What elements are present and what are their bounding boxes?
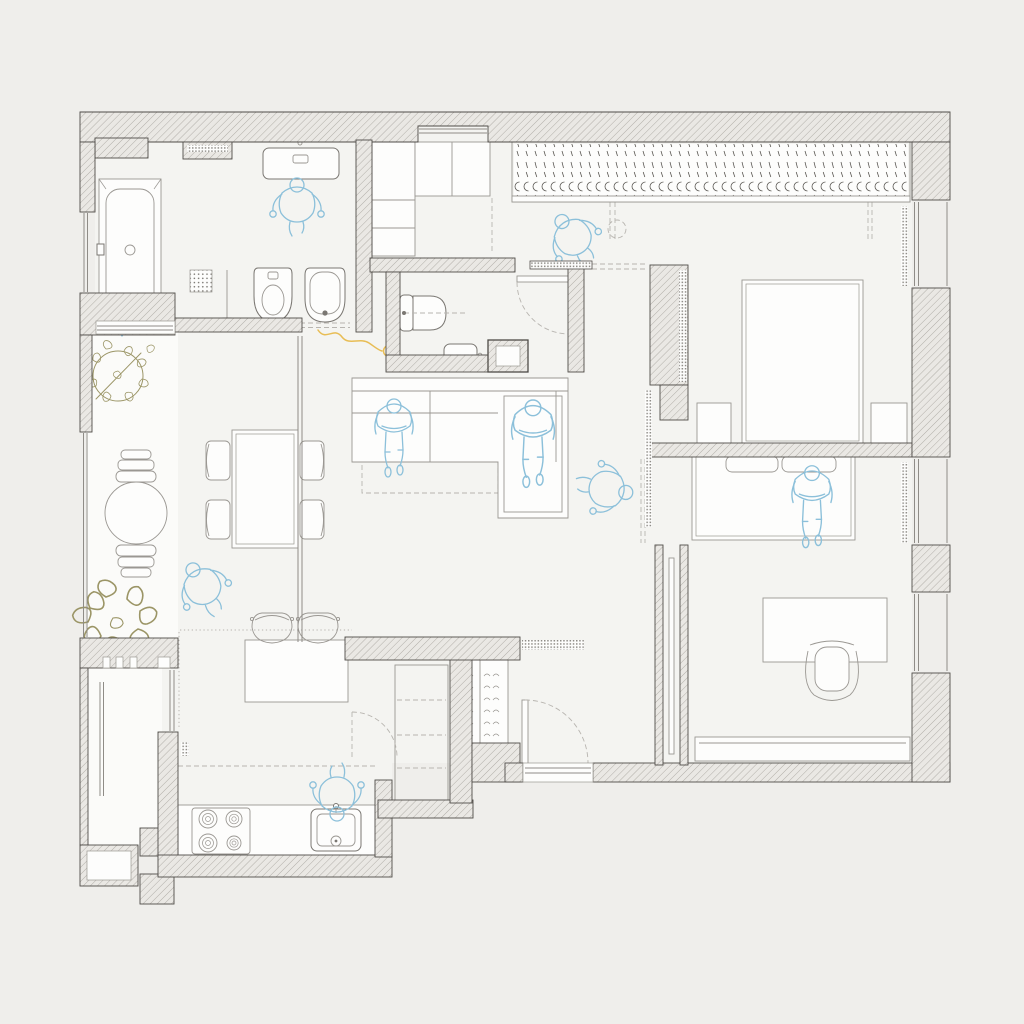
washbasin bbox=[263, 148, 339, 179]
bathtub-faucet bbox=[97, 244, 104, 255]
wall-tv bbox=[345, 637, 520, 660]
pocket-wall-west bbox=[655, 545, 663, 765]
shower-head-grid bbox=[190, 270, 212, 292]
dining-chair bbox=[206, 441, 230, 480]
wall-wc-top bbox=[370, 258, 515, 272]
glass-partition-strip bbox=[645, 390, 652, 527]
roller-blind-kids bbox=[901, 462, 908, 543]
balcony-lower-floor bbox=[86, 662, 162, 846]
vent-grille-kitchen bbox=[181, 742, 189, 756]
double-bed bbox=[742, 280, 863, 445]
wall-kitchen-bottom bbox=[158, 855, 392, 877]
dining-table bbox=[232, 430, 298, 548]
hanging-rail bbox=[514, 144, 908, 197]
wardrobe-front bbox=[512, 196, 910, 202]
wall-bottom-right bbox=[593, 763, 950, 782]
floor-plan: Apartment floor plan — top view architec… bbox=[0, 0, 1024, 1024]
pocket-wall-east bbox=[680, 545, 688, 765]
wall-bathroom-right bbox=[356, 140, 372, 332]
vent-grille-bath bbox=[187, 145, 228, 152]
master-wall-panel-strip bbox=[679, 270, 687, 382]
pillow-2 bbox=[782, 456, 836, 472]
nightstand-left bbox=[697, 403, 731, 445]
upper-cabinet bbox=[415, 142, 490, 196]
tall-cabinet bbox=[372, 142, 415, 256]
nightstand-right bbox=[871, 403, 907, 445]
dining-chair bbox=[300, 500, 324, 539]
roller-blind-master bbox=[901, 206, 908, 286]
pocket-door-leaf bbox=[669, 558, 674, 754]
sliding-door-panel bbox=[530, 261, 592, 269]
wall-top bbox=[80, 112, 950, 142]
toilet bbox=[305, 268, 345, 322]
dining-chair bbox=[300, 441, 324, 480]
bidet bbox=[254, 268, 292, 322]
pillow-1 bbox=[726, 456, 778, 472]
wardrobe-closet bbox=[512, 142, 910, 202]
kitchen-sink bbox=[311, 804, 361, 852]
wc-door-leaf bbox=[517, 276, 569, 282]
entry-bench-dotted bbox=[522, 640, 584, 650]
dining-chair bbox=[206, 500, 230, 539]
floor-plan-page: Apartment floor plan — top view architec… bbox=[0, 0, 1024, 1024]
entrance-door-leaf bbox=[522, 700, 528, 764]
wall-master-south bbox=[650, 443, 912, 457]
peninsula-counter bbox=[245, 640, 348, 702]
wall-shelf bbox=[695, 737, 910, 761]
